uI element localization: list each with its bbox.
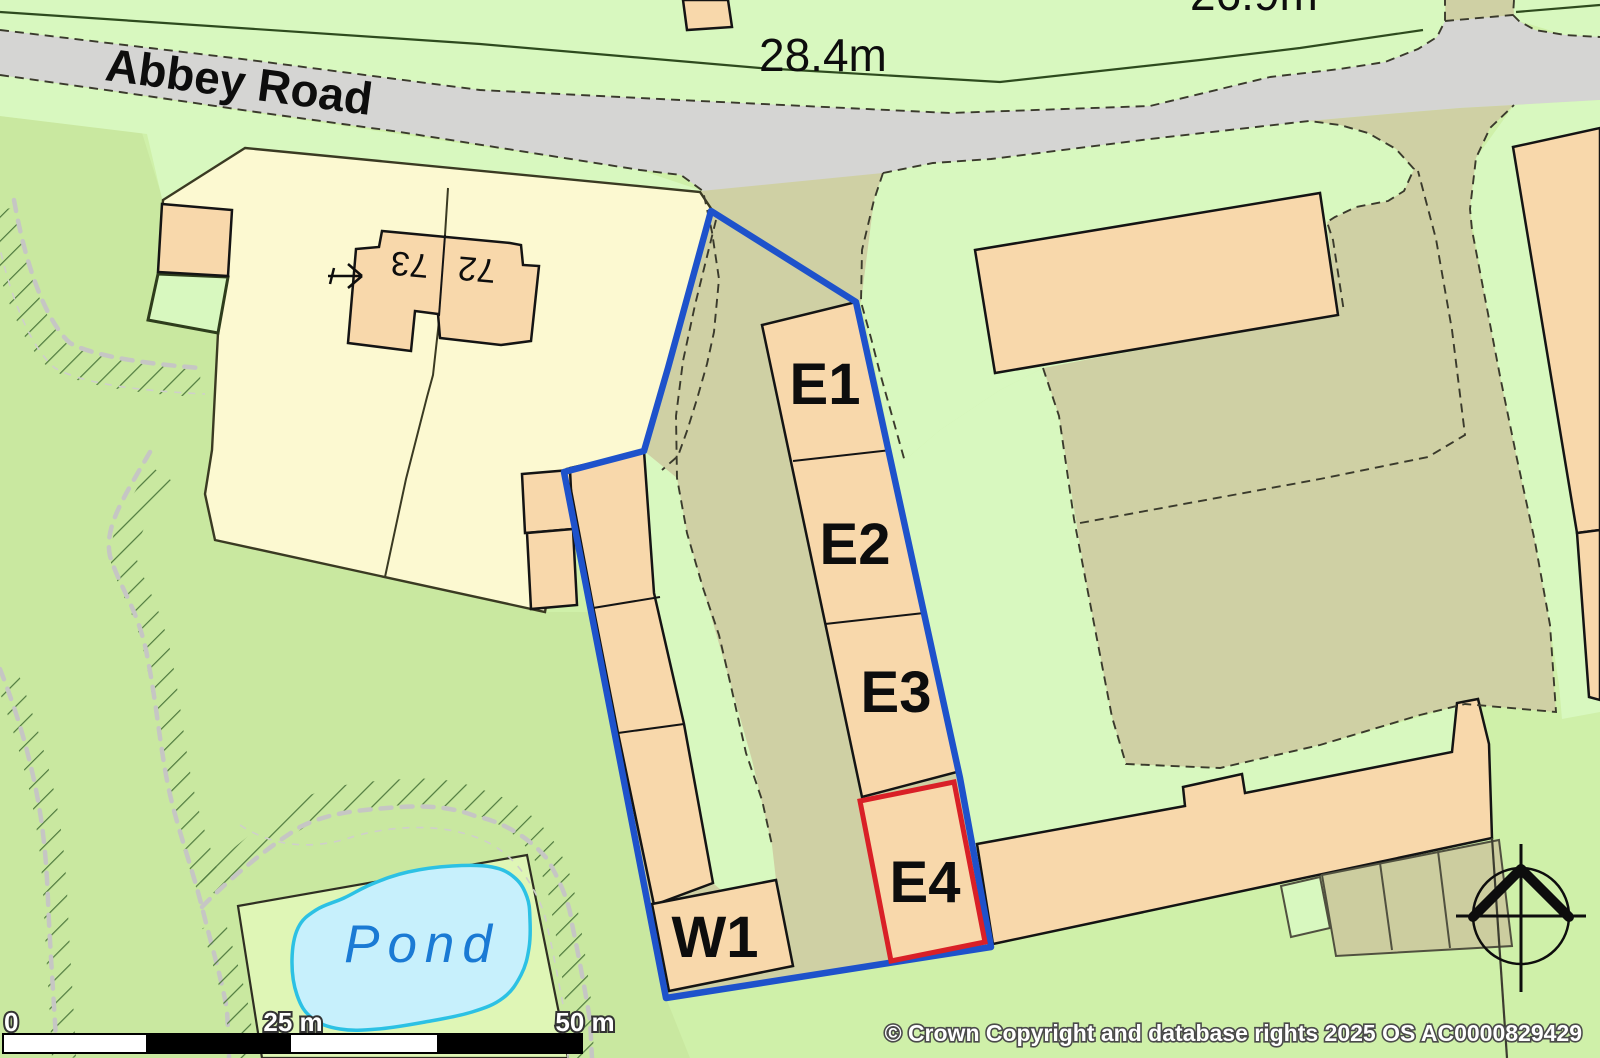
svg-text:W1: W1 — [672, 905, 759, 970]
svg-text:E3: E3 — [861, 660, 932, 725]
svg-text:26.9m: 26.9m — [1190, 0, 1318, 20]
svg-text:E2: E2 — [820, 512, 891, 577]
svg-text:50 m: 50 m — [555, 1007, 614, 1037]
svg-text:28.4m: 28.4m — [759, 29, 887, 81]
svg-text:25 m: 25 m — [263, 1007, 322, 1037]
svg-text:72: 72 — [456, 248, 497, 289]
svg-text:Pond: Pond — [344, 915, 500, 974]
svg-text:73: 73 — [389, 243, 430, 284]
svg-text:© Crown Copyright and database: © Crown Copyright and database rights 20… — [885, 1020, 1582, 1046]
svg-text:E4: E4 — [890, 850, 961, 915]
svg-text:E1: E1 — [790, 352, 861, 417]
svg-text:0: 0 — [4, 1007, 18, 1037]
